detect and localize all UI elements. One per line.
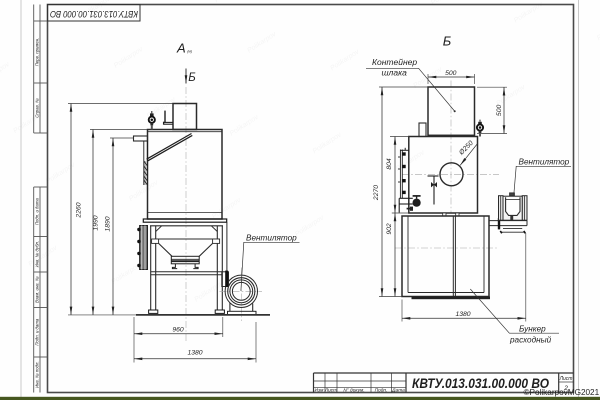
svg-text:N° докум.: N° докум. xyxy=(343,388,364,394)
svg-text:Подп. и дата: Подп. и дата xyxy=(35,318,40,346)
svg-text:расходный: расходный xyxy=(509,336,552,345)
svg-text:Вентилятор: Вентилятор xyxy=(246,233,297,242)
svg-text:Справ. №: Справ. № xyxy=(35,98,40,118)
svg-text:©PolikarpovMG2021: ©PolikarpovMG2021 xyxy=(524,388,600,397)
svg-text:Вентилятор: Вентилятор xyxy=(519,157,570,166)
svg-text:Изм: Изм xyxy=(315,388,325,394)
svg-text:2260: 2260 xyxy=(76,202,83,218)
svg-text:(м): (м) xyxy=(187,50,192,54)
svg-text:Подп. и дата: Подп. и дата xyxy=(35,198,40,226)
svg-text:500: 500 xyxy=(496,105,503,117)
svg-text:шлака: шлака xyxy=(382,68,408,78)
svg-text:Инв. № подл.: Инв. № подл. xyxy=(35,361,40,388)
svg-text:1380: 1380 xyxy=(187,350,202,357)
svg-text:804: 804 xyxy=(386,158,393,170)
svg-text:КВТУ.013.031.00.000 ВО: КВТУ.013.031.00.000 ВО xyxy=(50,9,138,19)
svg-text:1380: 1380 xyxy=(455,311,470,318)
svg-text:1890: 1890 xyxy=(105,216,112,231)
svg-text:Б: Б xyxy=(443,34,452,49)
svg-text:1990: 1990 xyxy=(93,215,100,230)
svg-text:А: А xyxy=(176,40,186,55)
svg-text:960: 960 xyxy=(172,326,184,333)
svg-text:Лист: Лист xyxy=(559,376,573,382)
svg-text:Инв. № дубл.: Инв. № дубл. xyxy=(35,241,40,267)
svg-text:Лист: Лист xyxy=(324,388,337,394)
svg-text:Дата: Дата xyxy=(391,388,405,394)
svg-text:Бункер: Бункер xyxy=(519,324,546,333)
svg-text:Перв. примен.: Перв. примен. xyxy=(35,38,40,67)
svg-text:Подп.: Подп. xyxy=(375,388,388,394)
svg-text:Контейнер: Контейнер xyxy=(372,57,417,67)
svg-text:Взам. инв. №: Взам. инв. № xyxy=(35,276,40,303)
svg-text:Б: Б xyxy=(188,72,196,84)
svg-text:902: 902 xyxy=(386,223,393,235)
svg-text:500: 500 xyxy=(445,70,457,77)
svg-text:2270: 2270 xyxy=(373,185,380,201)
